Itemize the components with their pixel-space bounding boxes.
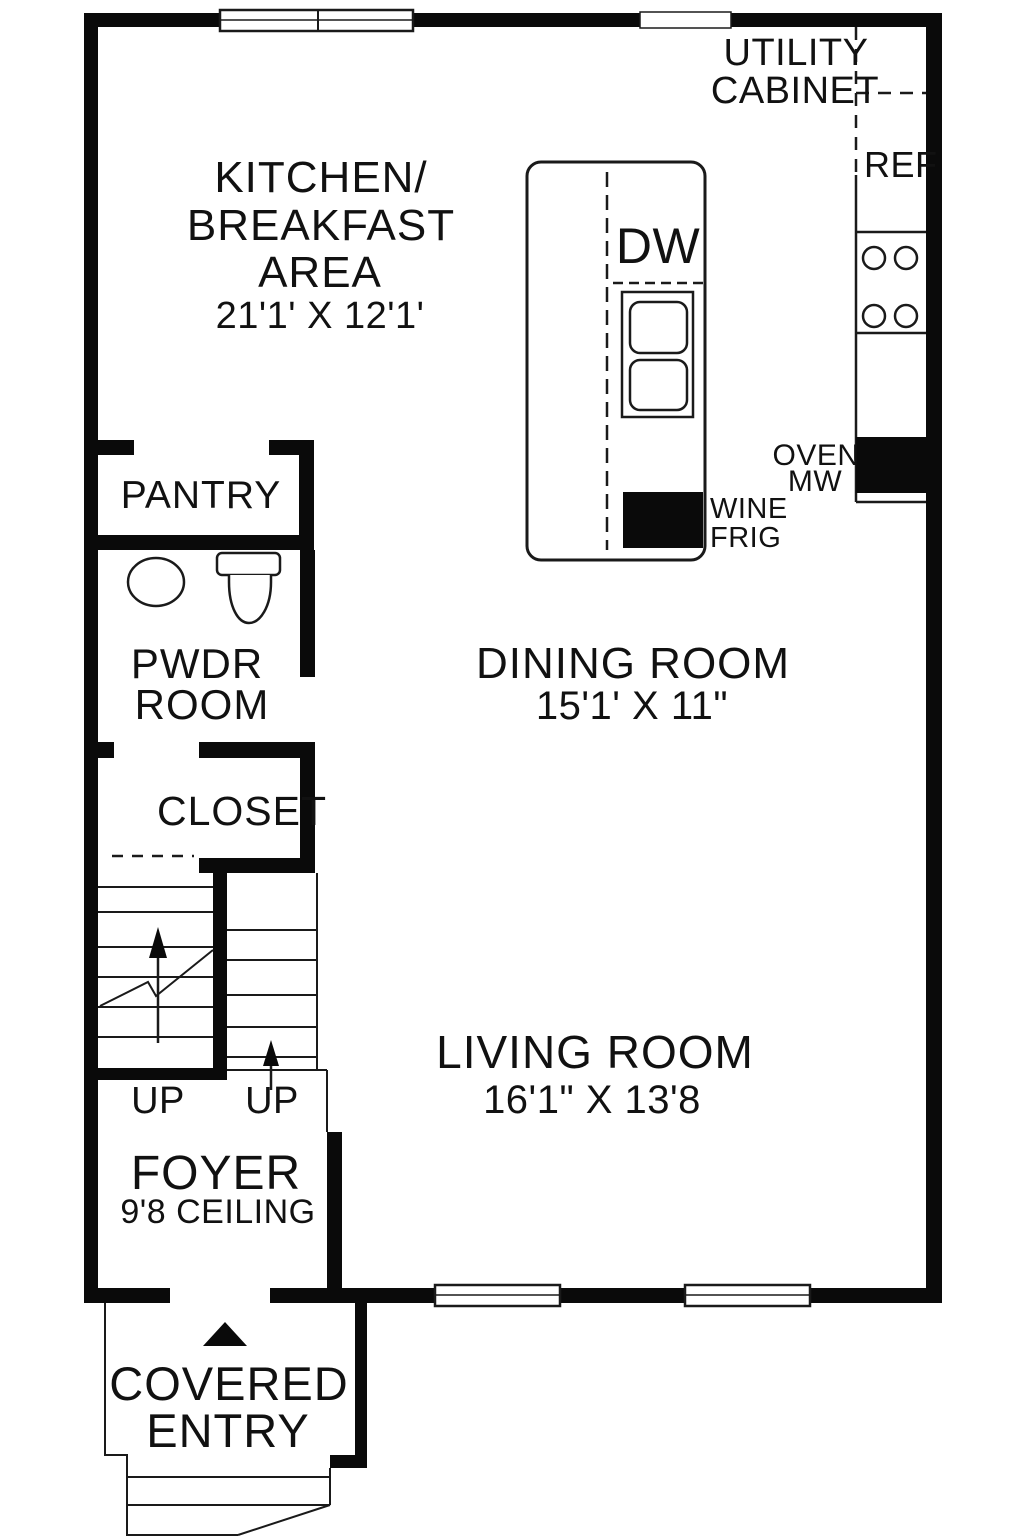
wine-frig-label-line2: FRIG (710, 522, 781, 554)
wall-left (84, 13, 98, 1303)
window-bottom-left (435, 1285, 560, 1306)
kitchen-label-line3: AREA (258, 248, 382, 297)
living-room-label: LIVING ROOM (436, 1026, 754, 1078)
covered-entry-label-line1: COVERED (109, 1357, 348, 1410)
kitchen-label-line1: KITCHEN/ (214, 153, 427, 202)
up-label-left: UP (131, 1080, 185, 1122)
burner-icon (863, 305, 885, 327)
wall-foyer-right (327, 1132, 342, 1303)
wall-stair-divider (213, 873, 227, 1069)
wall-stair-bottom-bar (98, 1068, 227, 1080)
microwave-label: MW (788, 465, 842, 498)
covered-entry-label-line2: ENTRY (146, 1404, 309, 1457)
wall-entry-right-stub (330, 1455, 367, 1468)
powder-sink-icon (128, 558, 184, 606)
pantry-label: PANTRY (121, 474, 282, 517)
powder-label-line1: PWDR (131, 640, 263, 687)
wine-frig-label-line1: WINE (710, 493, 788, 525)
wine-frig-unit (623, 492, 703, 548)
powder-label-line2: ROOM (135, 681, 270, 728)
wall-entry-right (355, 1303, 367, 1468)
window-bottom-right (685, 1285, 810, 1306)
utility-cabinet-label-line2: CABINET (711, 70, 879, 112)
island-sink (622, 292, 693, 417)
burner-icon (895, 305, 917, 327)
floor-plan-page: KITCHEN/ BREAKFAST AREA 21'1' X 12'1' UT… (0, 0, 1024, 1536)
dining-room-dimensions: 15'1' X 11" (536, 684, 728, 728)
closet-label: CLOSET (157, 788, 327, 834)
sink-basin-bottom (630, 360, 687, 410)
wall-closet-top (199, 742, 314, 758)
burner-icon (895, 247, 917, 269)
refrigerator-label: REF (864, 144, 938, 185)
wall-bottom-main-segment (270, 1288, 942, 1303)
wall-top (84, 13, 942, 27)
wall-powder-bottom-stub (98, 742, 114, 758)
utility-cabinet-label-line1: UTILITY (724, 32, 869, 74)
window-top-double (220, 10, 413, 31)
window-top-small (640, 12, 731, 28)
wall-pantry-right (299, 440, 314, 550)
floor-plan-drawing: KITCHEN/ BREAKFAST AREA 21'1' X 12'1' UT… (0, 0, 1024, 1536)
burner-icon (863, 247, 885, 269)
wall-pantry-top-left-stub (98, 440, 134, 455)
up-label-right: UP (245, 1080, 299, 1122)
wall-right (926, 13, 942, 1303)
foyer-ceiling-label: 9'8 CEILING (120, 1193, 315, 1231)
living-room-dimensions: 16'1" X 13'8 (483, 1078, 701, 1122)
wall-powder-right (300, 550, 315, 677)
kitchen-label-line2: BREAKFAST (187, 201, 455, 250)
wall-bottom-left-segment (84, 1288, 170, 1303)
kitchen-dimensions: 21'1' X 12'1' (216, 295, 425, 337)
dishwasher-label: DW (616, 218, 701, 274)
oven-microwave-unit (856, 437, 926, 493)
wall-pantry-powder-divider (84, 535, 314, 550)
sink-basin-top (630, 302, 687, 353)
dining-room-label: DINING ROOM (476, 639, 790, 688)
wall-closet-bottom (199, 858, 314, 873)
